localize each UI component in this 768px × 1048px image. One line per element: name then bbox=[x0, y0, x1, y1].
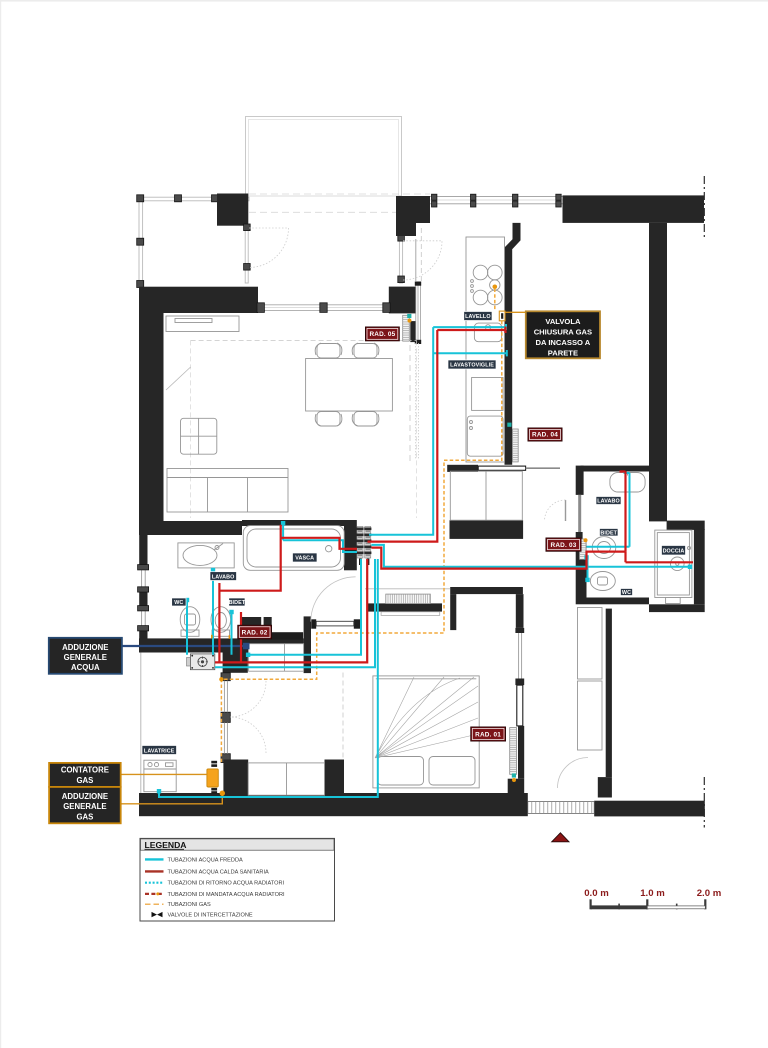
svg-text:VASCA: VASCA bbox=[295, 556, 314, 562]
svg-text:TUBAZIONI DI MANDATA ACQUA RAD: TUBAZIONI DI MANDATA ACQUA RADIATORI bbox=[168, 892, 286, 898]
svg-text:BIDET: BIDET bbox=[229, 600, 246, 606]
svg-text:ADDUZIONE: ADDUZIONE bbox=[62, 792, 108, 801]
svg-text:CONTATORE: CONTATORE bbox=[61, 766, 109, 775]
svg-text:1.0 m: 1.0 m bbox=[640, 888, 665, 899]
svg-text:WC: WC bbox=[622, 590, 631, 596]
svg-text:0.0 m: 0.0 m bbox=[584, 888, 609, 899]
svg-text:TUBAZIONI ACQUA CALDA SANITARI: TUBAZIONI ACQUA CALDA SANITARIA bbox=[168, 869, 269, 875]
svg-text:BIDET: BIDET bbox=[600, 530, 617, 536]
svg-text:GAS: GAS bbox=[76, 776, 93, 785]
svg-text:RAD. 01: RAD. 01 bbox=[475, 731, 501, 738]
svg-text:LAVABO: LAVABO bbox=[597, 499, 620, 505]
svg-text:RAD. 05: RAD. 05 bbox=[369, 331, 395, 338]
svg-text:LAVASTOVIGLIE: LAVASTOVIGLIE bbox=[450, 363, 494, 369]
svg-text:DA INCASSO A: DA INCASSO A bbox=[536, 338, 591, 347]
svg-text:RAD. 02: RAD. 02 bbox=[242, 630, 268, 637]
svg-text:GENERALE: GENERALE bbox=[64, 653, 107, 662]
svg-text:TUBAZIONI ACQUA FREDDA: TUBAZIONI ACQUA FREDDA bbox=[168, 857, 243, 863]
svg-text:LAVELLO: LAVELLO bbox=[465, 314, 490, 320]
svg-text:LAVATRICE: LAVATRICE bbox=[144, 748, 175, 754]
svg-text:CHIUSURA GAS: CHIUSURA GAS bbox=[534, 328, 592, 337]
svg-text:LAVABO: LAVABO bbox=[212, 574, 235, 580]
svg-text:GAS: GAS bbox=[76, 812, 93, 821]
svg-text:LEGENDA: LEGENDA bbox=[145, 840, 187, 850]
svg-text:VALVOLA: VALVOLA bbox=[545, 317, 581, 326]
svg-text:ACQUA: ACQUA bbox=[71, 663, 100, 672]
svg-text:PARETE: PARETE bbox=[548, 349, 578, 358]
svg-text:VALVOLE DI INTERCETTAZIONE: VALVOLE DI INTERCETTAZIONE bbox=[168, 913, 253, 919]
svg-text:GENERALE: GENERALE bbox=[63, 802, 106, 811]
svg-text:RAD. 04: RAD. 04 bbox=[532, 432, 558, 439]
svg-text:TUBAZIONI GAS: TUBAZIONI GAS bbox=[168, 902, 211, 908]
svg-text:RAD. 03: RAD. 03 bbox=[551, 542, 577, 549]
svg-text:2.0 m: 2.0 m bbox=[697, 888, 722, 899]
svg-text:TUBAZIONI DI RITORNO ACQUA RAD: TUBAZIONI DI RITORNO ACQUA RADIATORI bbox=[168, 881, 285, 887]
svg-text:DOCCIA: DOCCIA bbox=[663, 549, 685, 555]
svg-text:ADDUZIONE: ADDUZIONE bbox=[62, 643, 108, 652]
svg-text:WC: WC bbox=[174, 600, 183, 606]
